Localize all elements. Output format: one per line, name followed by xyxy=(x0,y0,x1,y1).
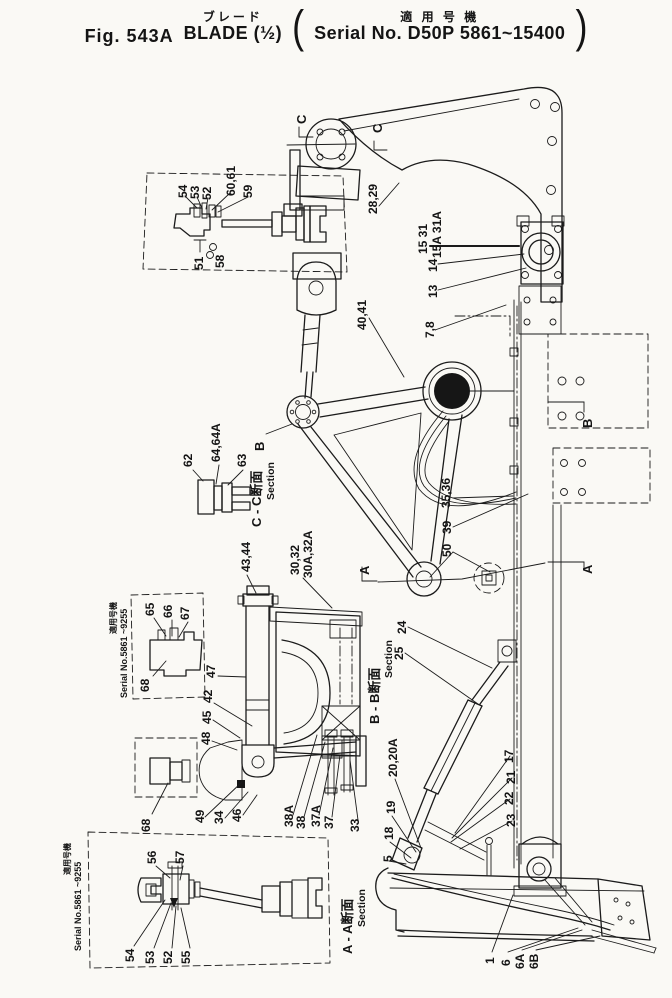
lift-cylinder-assembly xyxy=(199,586,366,800)
callout-64-64a: 64,64A xyxy=(209,423,223,462)
callout-58: 58 xyxy=(213,254,227,268)
triangle-brace-frame: 40,41 xyxy=(287,300,516,596)
trunnion-bracket xyxy=(514,837,566,896)
callout-14: 14 xyxy=(426,258,440,272)
callout-46: 46 xyxy=(230,808,244,822)
push-arm-plate: 28,29 xyxy=(339,87,562,302)
section-cc-sub: Section xyxy=(265,462,277,500)
top-left-detail-box: 54 53 52 60,61 59 51 58 xyxy=(143,166,347,272)
callout-20-20a: 20,20A xyxy=(386,738,400,777)
callout-62: 62 xyxy=(181,453,195,467)
callout-6: 6 xyxy=(499,959,513,966)
callout-5: 5 xyxy=(381,855,395,862)
section-marker-a-right: A xyxy=(580,564,595,574)
callout-1: 1 xyxy=(483,957,497,964)
callout-40-41: 40,41 xyxy=(355,300,369,330)
callout-15a-31a: 15A 31A xyxy=(430,211,444,258)
serial-detail-box-2: 適用号機 Serial No.5861 ~9255 56 57 54 53 52… xyxy=(62,832,330,968)
callout-42: 42 xyxy=(201,689,215,703)
callout-55: 55 xyxy=(179,950,193,964)
blade-moldboard: 1 6 6A 6B xyxy=(376,868,656,969)
callout-24: 24 xyxy=(395,620,409,634)
callout-38: 38 xyxy=(294,815,308,829)
callout-63: 63 xyxy=(235,453,249,467)
callout-66: 66 xyxy=(161,604,175,618)
callout-37: 37 xyxy=(322,815,336,829)
section-cc-title: C - C断面 xyxy=(249,471,264,527)
callout-37a: 37A xyxy=(309,805,323,827)
callout-17: 17 xyxy=(502,749,516,763)
section-bb-title: B - B断面 xyxy=(367,668,382,724)
section-marker-b-left: B xyxy=(252,442,267,451)
callout-15-31: 15 31 xyxy=(416,224,430,254)
callout-33: 33 xyxy=(348,818,362,832)
lift-strut: 24 25 20,20A 19 18 5 17 21 22 23 xyxy=(381,620,518,875)
section-label-bb: B - B断面 Section xyxy=(367,640,395,724)
callout-45: 45 xyxy=(200,710,214,724)
bearing-assembly: 15 31 15A 31A 14 13 7,8 xyxy=(416,211,564,338)
section-label-cc: C - C断面 Section B xyxy=(249,424,292,527)
callout-6b: 6B xyxy=(527,953,541,969)
callout-67: 67 xyxy=(178,606,192,620)
section-aa-sub: Section xyxy=(356,889,368,927)
callout-34: 34 xyxy=(212,810,226,824)
upper-cylinder-callouts: 43,44 30,32 30A,32A xyxy=(239,530,332,608)
serial-box2-jp: 適用号機 xyxy=(62,843,72,875)
callout-22: 22 xyxy=(502,791,516,805)
callout-21: 21 xyxy=(504,770,518,784)
callout-49: 49 xyxy=(193,809,207,823)
small-detail-box-68: 68 xyxy=(135,738,197,832)
callout-30-32: 30,32 xyxy=(288,545,302,575)
callout-52b: 52 xyxy=(161,950,175,964)
callout-28-29: 28,29 xyxy=(366,184,380,214)
section-marker-b-right: B xyxy=(580,419,595,428)
callout-18: 18 xyxy=(382,826,396,840)
callout-68-box2: 68 xyxy=(139,818,153,832)
section-label-aa: A - A断面 Section xyxy=(340,889,368,954)
callout-59: 59 xyxy=(241,184,255,198)
callout-35-36: 35,36 xyxy=(439,478,453,508)
callout-30a-32a: 30A,32A xyxy=(301,530,315,578)
callout-60-61: 60,61 xyxy=(224,166,238,196)
callout-48: 48 xyxy=(199,731,213,745)
callout-25: 25 xyxy=(392,646,406,660)
serial-box1-jp: 適用号機 xyxy=(108,602,118,634)
callout-52: 52 xyxy=(200,186,214,200)
callout-19: 19 xyxy=(384,800,398,814)
callout-54b: 54 xyxy=(123,948,137,962)
serial-box2-en: Serial No.5861 ~9255 xyxy=(73,862,83,951)
serial-detail-box-1: 適用号機 Serial No.5861 ~9255 65 66 67 68 xyxy=(108,593,205,699)
callout-13: 13 xyxy=(426,284,440,298)
callout-65: 65 xyxy=(143,602,157,616)
tilt-cylinder xyxy=(293,253,341,398)
callout-51: 51 xyxy=(192,256,206,270)
callout-47: 47 xyxy=(204,664,218,678)
callout-50: 50 xyxy=(440,543,454,557)
joint-callouts: 35,36 39 50 xyxy=(430,478,528,577)
callout-56: 56 xyxy=(145,850,159,864)
push-frame-rail: B A xyxy=(510,300,650,868)
yoke-detail-part: 62 64,64A 63 xyxy=(181,423,250,514)
section-marker-a-left: A xyxy=(357,565,372,575)
section-marker-c-1: C xyxy=(294,114,309,124)
callout-68-box1: 68 xyxy=(138,678,152,692)
serial-box1-en: Serial No.5861 ~9255 xyxy=(119,609,129,698)
callout-39: 39 xyxy=(440,520,454,534)
section-aa-title: A - A断面 xyxy=(340,899,355,954)
parts-diagram: 54 53 52 60,61 59 51 58 C C 28,29 xyxy=(0,0,672,998)
callout-6a: 6A xyxy=(513,953,527,969)
callout-57: 57 xyxy=(173,850,187,864)
callout-23: 23 xyxy=(504,813,518,827)
callout-7-8: 7,8 xyxy=(423,321,437,338)
callout-43-44: 43,44 xyxy=(239,542,253,572)
callout-53b: 53 xyxy=(143,950,157,964)
